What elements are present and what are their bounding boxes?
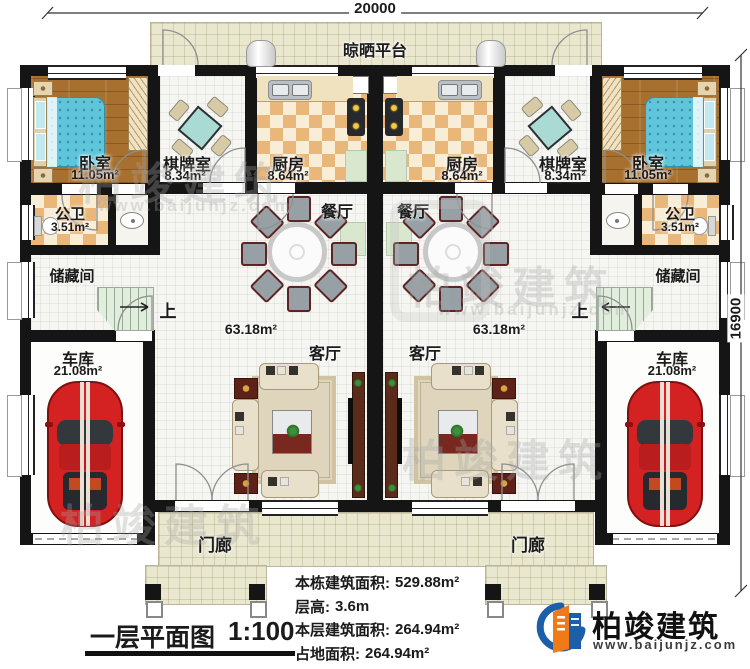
dining-left-label: 餐厅: [321, 198, 353, 222]
stat-row: 层高:3.6m: [295, 595, 459, 619]
bathroom-right-area: 3.51m²: [661, 220, 699, 234]
kitchen-right-area: 8.64m²: [441, 168, 482, 183]
stat-label: 占地面积:: [295, 643, 360, 664]
stairs-up-left-label: 上: [160, 297, 177, 322]
right-dimension-label: 16900: [727, 295, 744, 343]
drawing-scale: 1:100: [228, 616, 295, 647]
bedroom-right-area: 11.05m²: [624, 167, 672, 182]
stats-block: 本栋建筑面积:529.88m² 层高:3.6m 本层建筑面积:264.94m² …: [295, 571, 459, 665]
living-right-label: 客厅: [409, 340, 441, 364]
storage-left-label: 储藏间: [49, 265, 94, 286]
game-room-right-area: 8.34m²: [544, 168, 585, 183]
drawing-title: 一层平面图: [90, 618, 215, 654]
garage-left-area: 21.08m²: [54, 363, 102, 378]
company-website: www.baijunjz.com: [593, 637, 737, 652]
garage-right-area: 21.08m²: [648, 363, 696, 378]
stairs-up-right-label: 上: [572, 297, 589, 322]
stat-label: 层高:: [295, 596, 330, 617]
porch-right-label: 门廊: [511, 531, 545, 556]
living-left-label: 客厅: [309, 340, 341, 364]
kitchen-left-area: 8.64m²: [267, 168, 308, 183]
storage-right-label: 储藏间: [655, 265, 700, 286]
stat-row: 本栋建筑面积:529.88m²: [295, 571, 459, 595]
title-underline: [85, 651, 295, 656]
living-right-area: 63.18m²: [473, 321, 525, 337]
stat-row: 本层建筑面积:264.94m²: [295, 618, 459, 642]
door-arcs-and-dimension-lines: [0, 0, 750, 669]
bedroom-left-area: 11.05m²: [71, 167, 119, 182]
stat-value: 264.94m²: [365, 645, 429, 662]
stat-label: 本栋建筑面积:: [295, 572, 390, 593]
stat-value: 264.94m²: [395, 621, 459, 638]
living-left-area: 63.18m²: [225, 321, 277, 337]
top-dimension-label: 20000: [349, 0, 401, 17]
platform-label: 晾晒平台: [343, 37, 407, 61]
company-logo-icon: [531, 600, 589, 656]
stat-value: 529.88m²: [395, 574, 459, 591]
game-room-left-area: 8.34m²: [164, 168, 205, 183]
watermark-logo-glyph: [390, 200, 490, 322]
stat-value: 3.6m: [335, 598, 369, 615]
stat-label: 本层建筑面积:: [295, 619, 390, 640]
porch-left-label: 门廊: [198, 531, 232, 556]
bathroom-left-area: 3.51m²: [51, 220, 89, 234]
floor-plan-page: 晾晒平台 卧室 11.05m² 卧室 11.05m² 棋牌室 8.34m² 棋牌…: [0, 0, 750, 669]
stat-row: 占地面积:264.94m²: [295, 642, 459, 666]
